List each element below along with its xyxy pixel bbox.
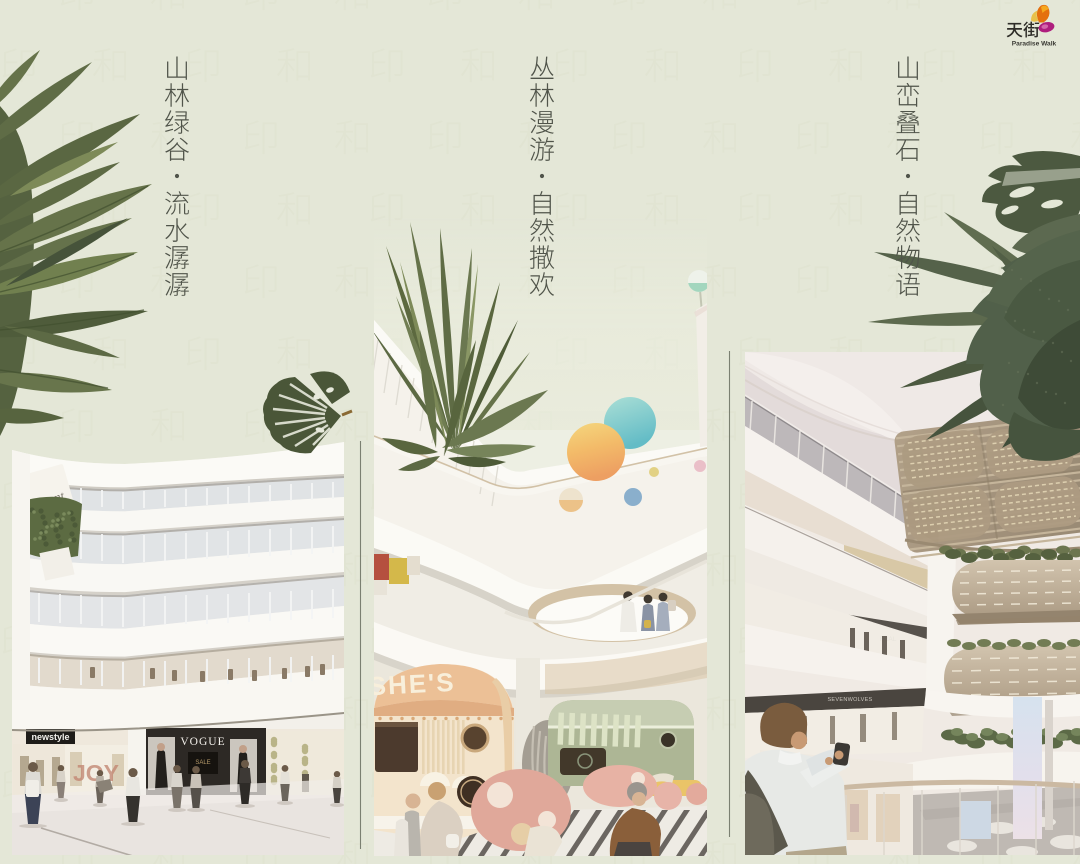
svg-text:SHE'S: SHE'S: [368, 667, 456, 702]
svg-text:SALE: SALE: [195, 760, 210, 766]
svg-text:newstyle: newstyle: [31, 732, 69, 742]
svg-text:VOGUE: VOGUE: [180, 736, 225, 748]
svg-text:SEVENWOLVES: SEVENWOLVES: [827, 697, 872, 703]
svg-text:Paradise Walk: Paradise Walk: [1012, 41, 1057, 48]
